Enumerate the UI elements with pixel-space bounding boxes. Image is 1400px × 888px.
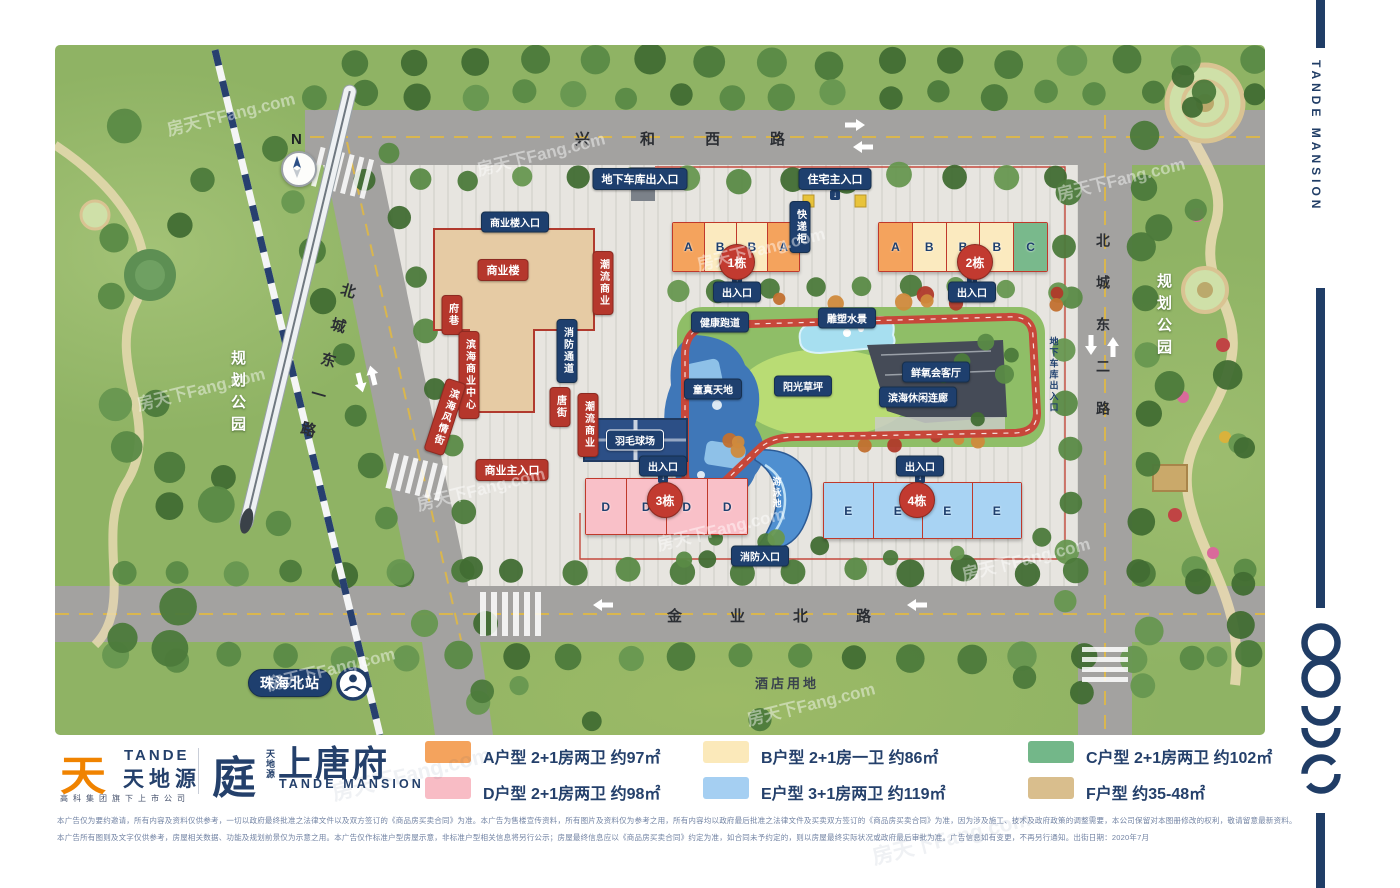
sculpture-water-label: 雕塑水景 xyxy=(818,308,876,329)
site-plan-poster: A B B A A B B B C D D D D E E E E 1栋 2栋 … xyxy=(0,0,1400,888)
project-name-en: TANDE MANSION xyxy=(279,777,424,791)
station-label: 珠海北站 xyxy=(248,669,332,697)
group-name-en: TANDE xyxy=(124,747,190,764)
garage-entry-label: 地下车库出入口 xyxy=(593,168,688,190)
commercial-main-entry-label: 商业主入口 xyxy=(476,459,549,481)
sidebar-vertical-title: TANDE MANSION xyxy=(1309,60,1323,212)
leisure-corridor-label: 滨海休闲连廊 xyxy=(879,387,957,408)
unit-label: D xyxy=(601,500,610,514)
commercial-entry-label: 商业楼入口 xyxy=(481,212,549,233)
logo-divider xyxy=(198,748,199,794)
group-name-cn: 天地源 xyxy=(123,763,201,793)
left-park-label: 规划公园 xyxy=(227,350,248,438)
commercial-building-label: 商业楼 xyxy=(478,259,529,281)
unit-label: D xyxy=(723,500,732,514)
building-4-badge: 4栋 xyxy=(899,482,935,518)
legend-label-B: B户型 2+1房一卫 约86㎡ xyxy=(761,744,938,768)
railway-station-icon xyxy=(335,666,371,702)
legend-swatch-E xyxy=(703,777,749,799)
unit-label: A xyxy=(779,240,788,254)
unit-label: E xyxy=(844,504,852,518)
hotel-land-label: 酒店用地 xyxy=(755,673,819,692)
trend-commercial-label-2: 潮流商业 xyxy=(578,393,599,457)
legend-swatch-D xyxy=(425,777,471,799)
unit-segment: D xyxy=(707,479,748,534)
fire-lane-label: 消防通道 xyxy=(557,319,578,383)
unit-segment: E xyxy=(824,483,873,538)
entrance-exit-label-1: 出入口 xyxy=(713,282,761,303)
sidebar-circles-logo xyxy=(1299,622,1343,804)
unit-label: B xyxy=(925,240,934,254)
entry-arrow-icon: ↓ xyxy=(830,190,840,200)
kids-world-label: 童真天地 xyxy=(684,379,742,400)
trend-commercial-label-1: 潮流商业 xyxy=(593,251,614,315)
entrance-exit-label-4: 出入口 xyxy=(896,456,944,477)
sidebar-rule-top xyxy=(1316,0,1325,48)
unit-segment: D xyxy=(586,479,626,534)
unit-label: D xyxy=(682,500,691,514)
unit-segment: A xyxy=(673,223,704,271)
legend-label-D: D户型 2+1房两卫 约98㎡ xyxy=(483,780,660,804)
building-1-badge: 1栋 xyxy=(719,244,755,280)
sunshine-lawn-label: 阳光草坪 xyxy=(774,376,832,397)
unit-segment: B xyxy=(912,223,946,271)
fu-alley-label: 府巷 xyxy=(442,295,463,335)
right-park-label: 规划公园 xyxy=(1153,273,1174,361)
entrance-exit-label-2: 出入口 xyxy=(948,282,996,303)
disclaimer-line-2: 本广告所有图则及文字仅供参考，房屋相关数据、功能及规划前景仅为示意之用。本广告仅… xyxy=(57,832,1149,843)
legend-swatch-F xyxy=(1028,777,1074,799)
fire-entry-label: 消防入口 xyxy=(731,546,789,567)
unit-label: A xyxy=(891,240,900,254)
legend-swatch-A xyxy=(425,741,471,763)
legend-label-F: F户型 约35-48㎡ xyxy=(1086,780,1205,804)
unit-segment: A xyxy=(879,223,912,271)
unit-label: E xyxy=(943,504,951,518)
disclaimer-line-1: 本广告仅为要约邀请，所有内容及资料仅供参考，一切以政府最终批准之法律文件以及双方… xyxy=(57,815,1297,826)
road-name-right: 北城东二路 xyxy=(1093,233,1113,443)
project-small-cn: 天地源 xyxy=(264,749,277,779)
oxygen-lounge-label: 鲜氧会客厅 xyxy=(902,362,970,383)
entrance-exit-label-3: 出入口 xyxy=(639,456,687,477)
unit-label: A xyxy=(684,240,693,254)
unit-segment: C xyxy=(1013,223,1047,271)
swimming-pool-label: 游泳池 xyxy=(771,477,784,510)
compass-icon xyxy=(281,151,317,187)
road-name-top: 兴和西路 xyxy=(575,128,835,149)
unit-label: C xyxy=(1026,240,1035,254)
unit-label: B xyxy=(992,240,1001,254)
legend-swatch-B xyxy=(703,741,749,763)
express-lockers-label: 快递柜 xyxy=(790,201,811,253)
project-mark-icon: 庭 xyxy=(212,742,256,806)
legend-swatch-C xyxy=(1028,741,1074,763)
north-letter: N xyxy=(291,131,302,148)
sidebar-rule-middle xyxy=(1316,288,1325,608)
group-tagline: 高科集团旗下上市公司 xyxy=(60,793,190,804)
unit-segment: E xyxy=(972,483,1022,538)
legend-label-E: E户型 3+1房两卫 约119㎡ xyxy=(761,780,946,804)
building-3-badge: 3栋 xyxy=(647,482,683,518)
sidebar-rule-bottom xyxy=(1316,813,1325,888)
site-plan-map: A B B A A B B B C D D D D E E E E 1栋 2栋 … xyxy=(55,45,1265,735)
legend-label-C: C户型 2+1房两卫 约102㎡ xyxy=(1086,744,1272,768)
residential-entry-label: 住宅主入口 xyxy=(799,168,872,190)
legend-label-A: A户型 2+1房两卫 约97㎡ xyxy=(483,744,660,768)
badminton-court-label: 羽毛球场 xyxy=(606,430,664,451)
unit-label: E xyxy=(993,504,1001,518)
building-2-badge: 2栋 xyxy=(957,244,993,280)
road-name-bottom: 金业北路 xyxy=(667,605,919,626)
health-track-label: 健康跑道 xyxy=(691,312,749,333)
binhai-center-label: 滨海商业中心 xyxy=(459,331,480,419)
garage-entry-right-label: 地下车库出入口 xyxy=(1048,337,1061,414)
tang-street-label: 唐街 xyxy=(550,387,571,427)
